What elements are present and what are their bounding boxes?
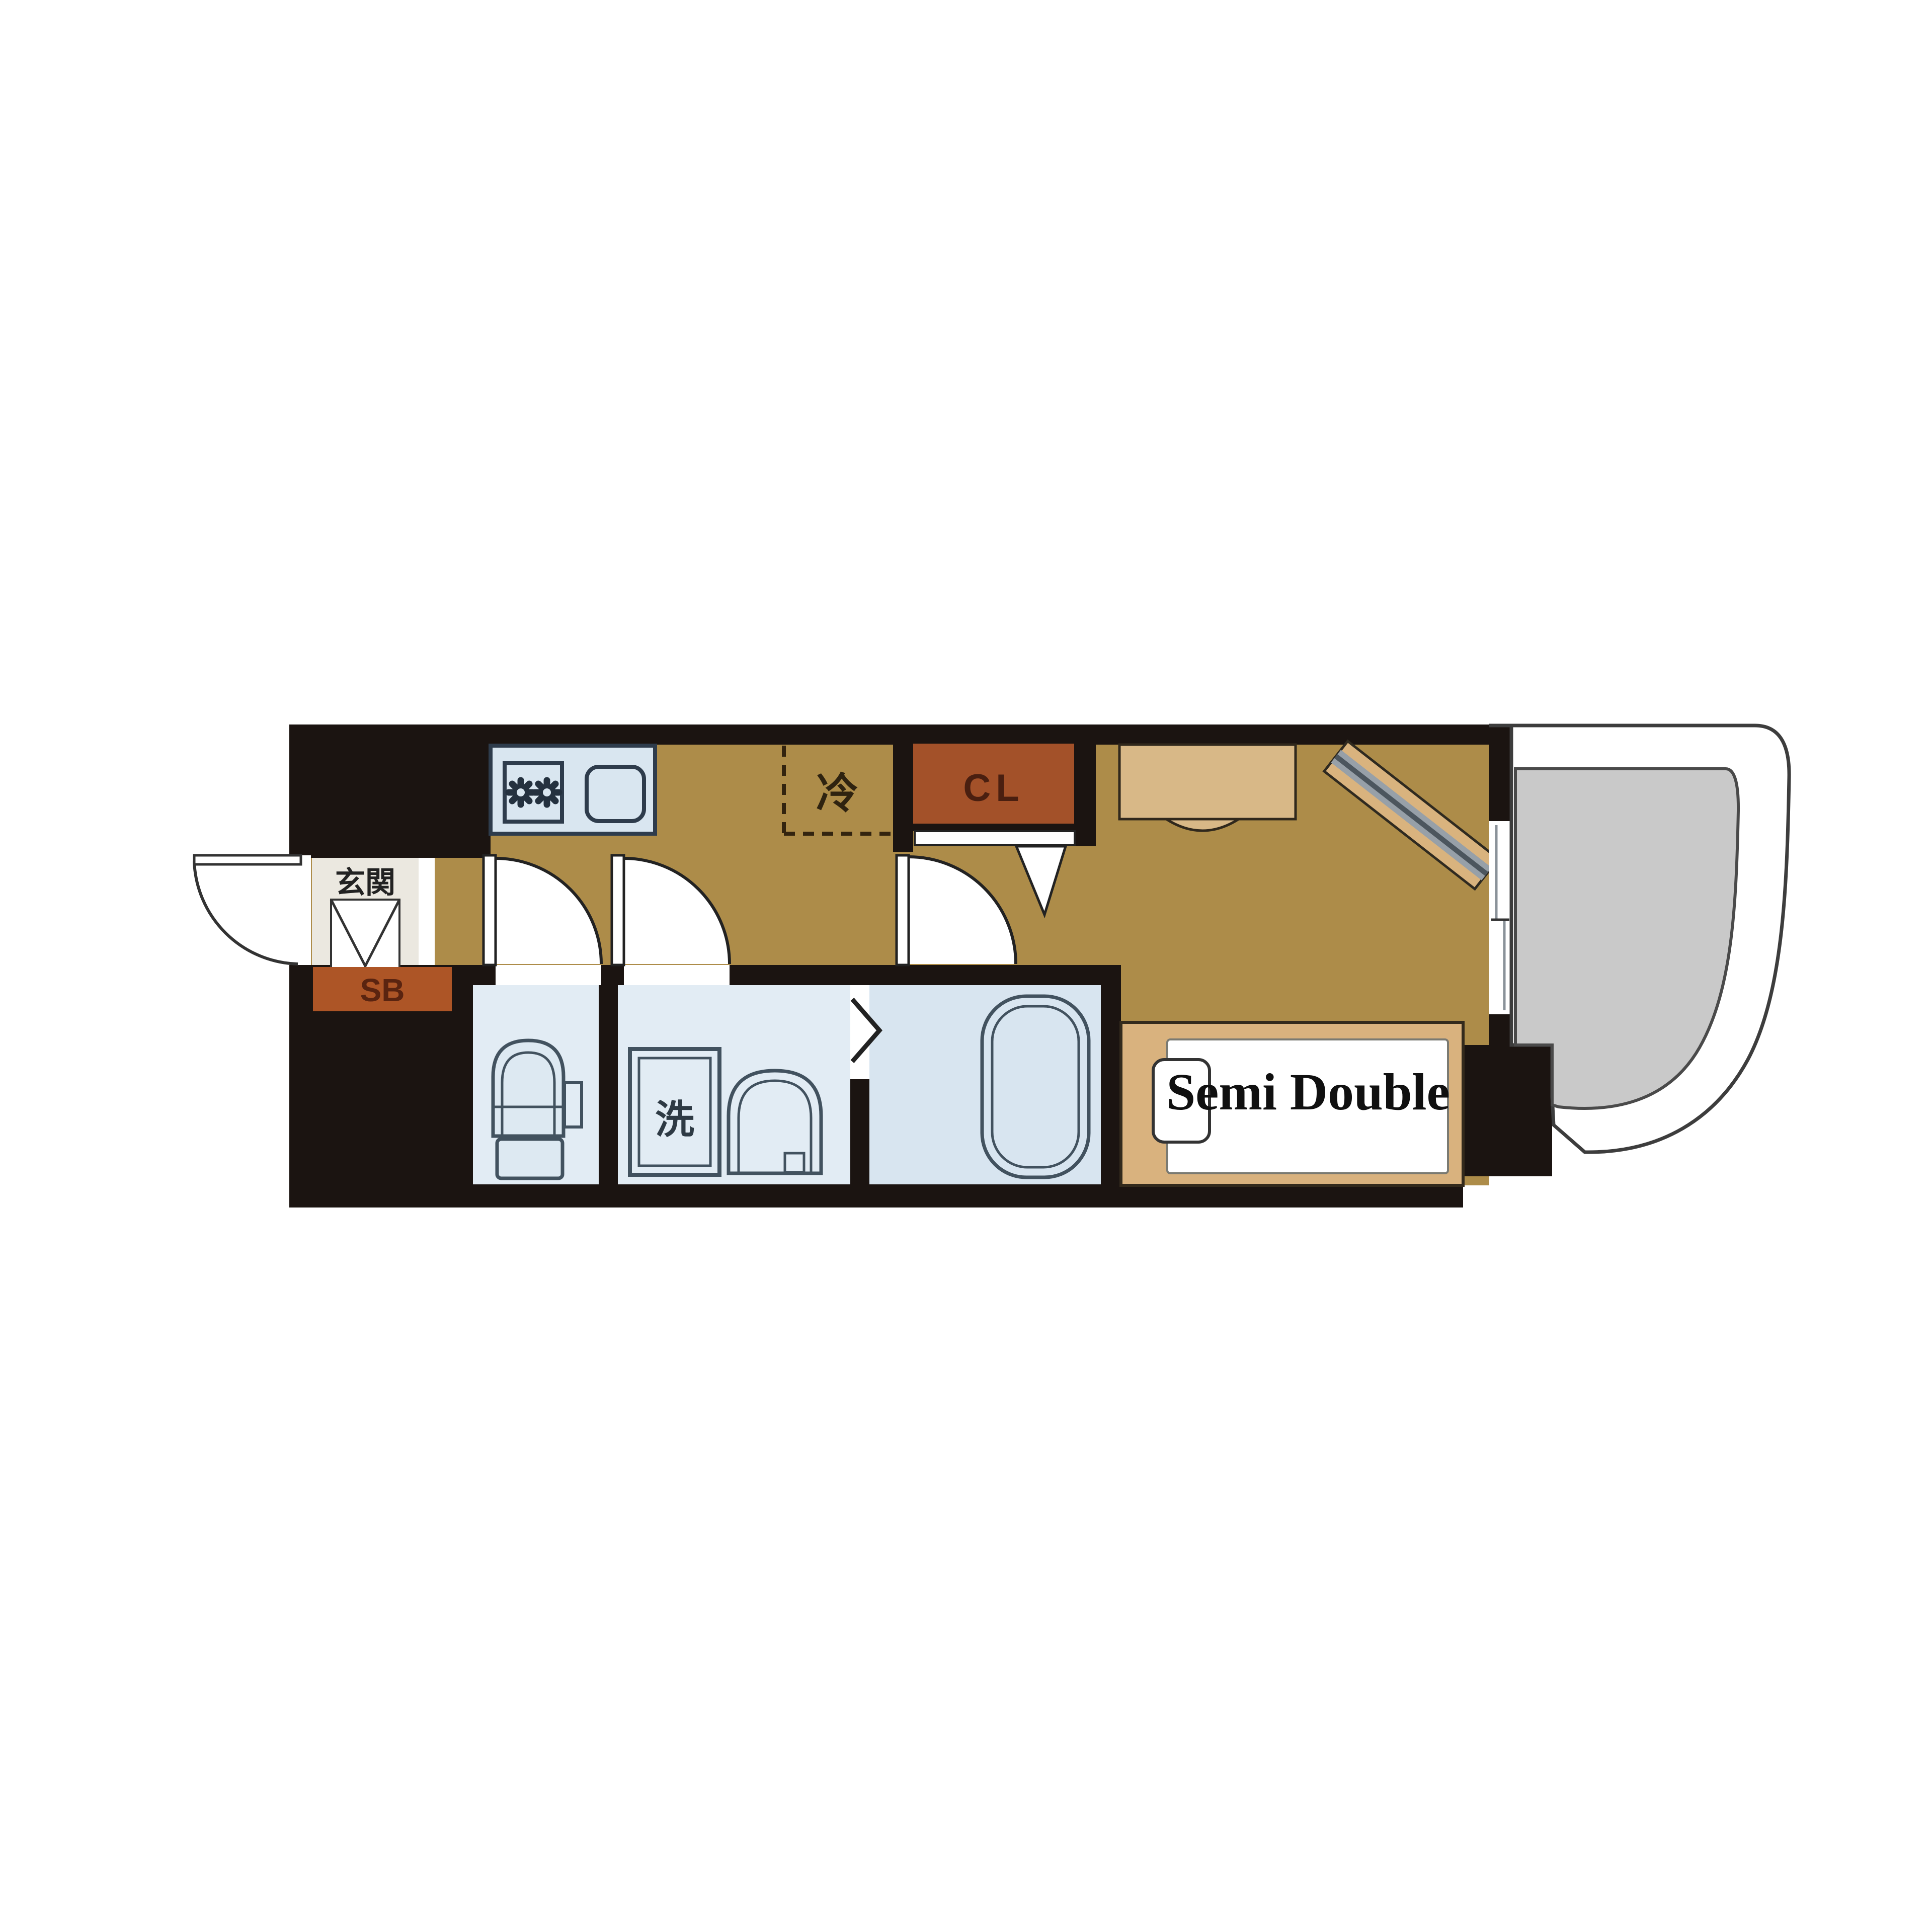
entrance-label: 玄関 (335, 866, 395, 900)
wall-block-top-left (289, 725, 491, 858)
closet-bottom-border (913, 824, 1074, 831)
balcony-window (1489, 821, 1511, 1014)
refrigerator-label: 冷 (816, 770, 858, 817)
washing-machine-label: 洗 (655, 1097, 694, 1142)
entrance-step-strip (419, 858, 435, 965)
front-door-swing-arc (194, 861, 298, 964)
wall-stub-window-bottom (1489, 1014, 1511, 1045)
toilet-door-leaf (484, 855, 496, 965)
closet-label: CL (963, 767, 1024, 810)
wall-toilet-wash (599, 985, 618, 1184)
washroom-door-leaf (612, 855, 624, 965)
closet-door-strip (915, 831, 1075, 845)
front-door-leaf (194, 855, 301, 864)
toilet-door-opening (496, 965, 601, 985)
floor-plan-drawing: 玄関 SB CL 冷 洗 Semi Double (0, 0, 1932, 1932)
toilet-tank (497, 1139, 562, 1178)
desk (1119, 745, 1296, 819)
bed-size-label: Semi Double (1166, 1063, 1450, 1121)
wall-block-bottom-right (1463, 1045, 1552, 1176)
bathtub-inner (992, 1006, 1079, 1167)
kitchen-sink (587, 767, 644, 821)
stove-burner-left (509, 780, 533, 804)
floor-plan-page: 玄関 SB CL 冷 洗 Semi Double (0, 0, 1932, 1932)
wash-basin-tap (785, 1153, 804, 1172)
wall-wash-bath (850, 1079, 869, 1184)
shoe-box-label: SB (360, 972, 405, 1008)
wall-stub-closet-right (1074, 732, 1096, 846)
front-door-opening (287, 855, 311, 965)
wall-bottom (289, 1184, 1463, 1207)
wall-stub-fridge-closet (893, 745, 913, 852)
toilet-bowl (493, 1040, 563, 1136)
stove-burner-right (535, 780, 559, 804)
wash-basin (729, 1071, 821, 1173)
wall-stub-window-top (1489, 744, 1511, 821)
entrance-step-box (331, 900, 399, 968)
washroom-door-opening (624, 965, 730, 985)
wall-bath-bedroom (1101, 985, 1121, 1184)
bedroom-door-leaf (897, 855, 909, 965)
toilet-flush-handle (565, 1083, 582, 1127)
